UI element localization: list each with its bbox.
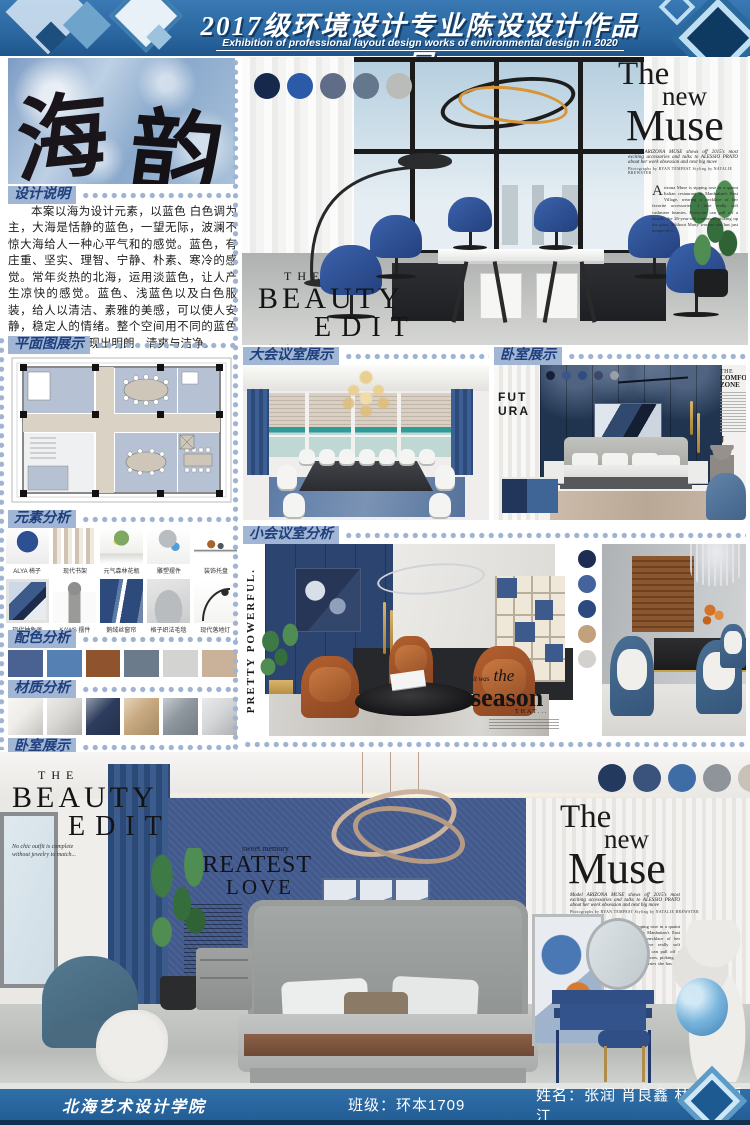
text-lines-decor — [489, 719, 559, 731]
class-text: 班级：环本1709 — [348, 1094, 465, 1115]
color-dot — [578, 625, 596, 643]
wood-blind — [632, 556, 694, 632]
white-chair — [277, 465, 297, 489]
material-swatch — [47, 698, 82, 735]
vanity-mirror — [586, 918, 650, 990]
lamp-shade — [398, 153, 452, 169]
text-lines-decor — [720, 392, 746, 432]
section-conference-large: 大会议室展示 — [243, 347, 489, 365]
curtain-thumb — [100, 579, 143, 623]
blue-sideboard — [502, 479, 558, 513]
vanity-leg — [556, 1030, 559, 1083]
abstract-art — [594, 403, 662, 439]
floor-plan-drawing — [8, 354, 235, 506]
poster-subtitle: Exhibition of professional layout design… — [190, 37, 650, 49]
material-swatch — [8, 698, 43, 735]
color-dot — [578, 371, 587, 380]
dotted-divider — [81, 515, 237, 524]
stool-leg — [642, 1046, 645, 1082]
white-chair — [379, 449, 395, 464]
section-elements: 元素分析 — [8, 510, 237, 528]
dotted-divider — [81, 635, 237, 644]
vanity-desk — [552, 990, 654, 1004]
white-chair — [299, 449, 315, 464]
color-swatch — [47, 650, 82, 677]
color-dot — [633, 764, 661, 792]
window-mullion — [305, 393, 309, 457]
vanity-drawer — [560, 1004, 646, 1030]
school-name: 北海艺术设计学院 — [62, 1093, 206, 1117]
blue-bubble — [676, 978, 728, 1036]
color-swatch — [124, 650, 159, 677]
section-conference-small: 小会议室分析 — [243, 526, 746, 544]
element-analysis-grid: ALYA 椅子 现代书架 元气森林花瓶 雕塑摆件 装饰托盘 现代抽象画 KAWS… — [6, 528, 237, 634]
diamond-icon — [659, 0, 696, 25]
material-swatches — [8, 698, 237, 735]
stool-leg — [604, 1046, 607, 1082]
dining-chair — [610, 636, 654, 716]
lounge-palette-dots — [578, 550, 596, 668]
potted-plant — [255, 622, 307, 686]
white-chair — [283, 493, 305, 517]
color-dot — [703, 764, 731, 792]
crystal-chandelier — [335, 367, 397, 419]
master-bedroom-photo: sweet memory GREATEST LOVE THE BEAUTY ED… — [0, 752, 750, 1083]
window-mullion — [397, 393, 401, 457]
dining-photo — [602, 544, 746, 736]
dotted-left-edge — [0, 336, 5, 750]
section-label: 材质分析 — [8, 680, 76, 698]
white-chair — [429, 493, 451, 517]
white-chair — [419, 449, 435, 464]
white-chair — [319, 449, 335, 464]
bedroom-photo: FUTURA THE COMFORT ZONE J — [494, 365, 746, 520]
pendant-cord — [362, 752, 363, 794]
white-chair — [399, 449, 415, 464]
dotted-divider — [567, 352, 746, 361]
color-dot — [320, 73, 346, 99]
section-label: 平面图展示 — [8, 336, 90, 354]
design-notes-body: 本案以海为设计元素，以蓝色 白色调为主，大海是恬静的蓝色，一望无际，波澜不惊大海… — [8, 204, 237, 352]
hero-calligraphy-panel: 海 韵 — [8, 58, 235, 184]
element-item: 格子织法毛毯 — [147, 579, 190, 634]
dotted-divider — [243, 740, 746, 749]
nightstand — [196, 948, 252, 1010]
pretty-powerful-typography: PRETTY POWERFUL. — [245, 568, 257, 713]
palette-swatches — [8, 650, 237, 677]
section-label: 元素分析 — [8, 510, 76, 528]
balcony-rail — [257, 435, 473, 437]
section-bedroom-display: 卧室展示 — [494, 347, 746, 365]
element-item: 现代抽象画 — [6, 579, 49, 634]
muse-headline-block: The new Muse Model ARIZONA MUSE shows of… — [618, 61, 744, 234]
sculpture-thumb — [147, 528, 190, 564]
section-label: 大会议室展示 — [243, 347, 339, 365]
poster-root: 2017级环境设计专业陈设设计作品展 Exhibition of profess… — [0, 0, 750, 1125]
gold-wall-decor — [690, 401, 693, 435]
rug — [550, 491, 710, 520]
color-swatch — [8, 650, 43, 677]
material-swatch — [86, 698, 121, 735]
dotted-divider — [95, 341, 237, 350]
blue-curtain — [247, 389, 269, 475]
color-swatch — [163, 650, 198, 677]
lounge-photo: PRETTY POWERFUL. it was the season THAT.… — [243, 544, 573, 736]
dotted-divider — [81, 685, 237, 694]
header-bar: 2017级环境设计专业陈设设计作品展 Exhibition of profess… — [0, 0, 750, 56]
color-dot — [578, 650, 596, 668]
office-photo: The new Muse Model ARIZONA MUSE shows of… — [242, 57, 748, 345]
crystal-strand-chandelier — [690, 544, 742, 586]
footer-bar: 北海艺术设计学院 班级：环本1709 姓名：张润 肖良鑫 林欣 王禹江 — [0, 1089, 750, 1120]
gold-light-bar — [383, 602, 386, 654]
blue-curtain — [451, 389, 473, 475]
color-dot — [562, 371, 571, 380]
color-dot — [578, 600, 596, 618]
section-palette: 配色分析 — [8, 630, 237, 648]
white-chair — [359, 449, 375, 464]
pendant-cord — [418, 752, 419, 794]
color-swatch — [86, 650, 121, 677]
diamond-icon — [109, 0, 183, 53]
gold-wall-decor — [697, 413, 700, 453]
section-materials: 材质分析 — [8, 680, 237, 698]
element-item: ALYA 椅子 — [6, 528, 49, 575]
color-dot — [578, 575, 596, 593]
dotted-column-divider — [231, 58, 240, 750]
footer-bottom-edge — [0, 1120, 750, 1125]
color-dot — [386, 73, 412, 99]
section-design-notes: 设计说明 — [8, 186, 237, 204]
futura-typography: FUTURA — [498, 391, 534, 419]
comfort-zone-block: THE COMFORT ZONE J — [720, 369, 746, 446]
brown-throw — [244, 1034, 534, 1056]
leather-chair — [301, 656, 359, 718]
dotted-divider — [81, 743, 237, 752]
dotted-divider — [344, 531, 746, 540]
vase-thumb — [100, 528, 143, 564]
color-dot — [738, 764, 750, 792]
color-dot — [668, 764, 696, 792]
calligraphy-char-sea: 海 — [16, 59, 108, 184]
plant-pot — [694, 269, 728, 297]
color-dot — [594, 371, 603, 380]
white-chair — [339, 449, 355, 464]
color-dot — [578, 550, 596, 568]
color-dot — [353, 73, 379, 99]
velvet-armchair — [706, 473, 746, 520]
color-dot — [610, 371, 619, 380]
throw-blanket — [560, 477, 692, 489]
bookshelf-thumb — [53, 528, 96, 564]
section-floor-plan: 平面图展示 — [8, 336, 237, 354]
conference-table — [299, 461, 433, 491]
beauty-edit-block: THE BEAUTY EDIT No chic outfit is comple… — [12, 768, 172, 860]
chair-thumb — [6, 528, 49, 564]
imac-box — [536, 273, 578, 319]
element-item: 现代书架 — [53, 528, 96, 575]
white-chair — [435, 465, 455, 489]
material-swatch — [163, 698, 198, 735]
office-palette-dots — [254, 73, 412, 99]
section-label: 配色分析 — [8, 630, 76, 648]
element-item: 雕塑摆件 — [147, 528, 190, 575]
dining-chair — [720, 624, 746, 668]
kaws-figure-thumb — [53, 579, 96, 623]
color-dot — [287, 73, 313, 99]
bedroom-palette-dots — [546, 371, 619, 380]
element-item: 鹅绒丝窗帘 — [100, 579, 143, 634]
office-chair — [534, 197, 578, 257]
dotted-divider — [81, 191, 237, 200]
floor-plan-svg — [8, 354, 235, 506]
master-palette-dots — [598, 764, 750, 792]
color-dot — [598, 764, 626, 792]
calligraphy-char-rhyme: 韵 — [122, 77, 232, 184]
blanket-thumb — [147, 579, 190, 623]
section-label: 小会议室分析 — [243, 526, 339, 544]
nightstand — [688, 461, 708, 483]
conference-photo — [243, 365, 489, 520]
element-item: KAWS 摆件 — [53, 579, 96, 634]
plant-pot — [160, 976, 198, 1010]
dotted-divider — [344, 352, 489, 361]
element-item: 元气森林花瓶 — [100, 528, 143, 575]
office-chair — [448, 197, 492, 257]
beauty-edit-block: THE BEAUTY EDIT No chic outfit is comple… — [258, 269, 418, 345]
material-swatch — [124, 698, 159, 735]
painting-thumb — [6, 579, 49, 623]
season-typography: it was the season THAT... — [471, 668, 559, 731]
color-dot — [546, 371, 555, 380]
pendant-cord — [390, 752, 391, 794]
section-label: 卧室展示 — [494, 347, 562, 365]
bed-base — [250, 1068, 526, 1083]
section-label: 设计说明 — [8, 186, 76, 204]
color-dot — [254, 73, 280, 99]
